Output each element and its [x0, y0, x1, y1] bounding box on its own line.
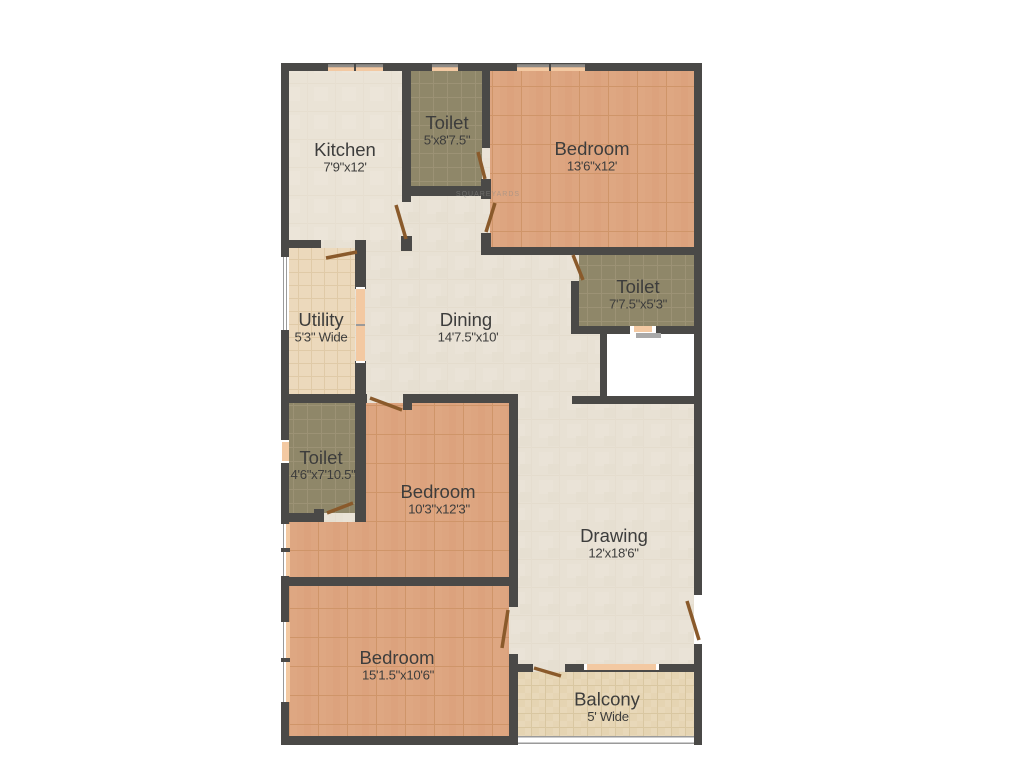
svg-text:10'3"x12'3": 10'3"x12'3"	[408, 502, 470, 517]
svg-text:SQUAREYARDS: SQUAREYARDS	[456, 191, 520, 198]
svg-text:13'6"x12': 13'6"x12'	[567, 159, 617, 174]
svg-text:Toilet: Toilet	[299, 447, 342, 468]
svg-text:5'3" Wide: 5'3" Wide	[295, 330, 348, 345]
svg-text:Drawing: Drawing	[580, 525, 648, 546]
svg-text:14'7.5"x10': 14'7.5"x10'	[438, 330, 499, 345]
svg-text:Toilet: Toilet	[425, 112, 468, 133]
svg-text:Dining: Dining	[440, 309, 492, 330]
svg-text:Bedroom: Bedroom	[554, 138, 629, 159]
svg-text:Balcony: Balcony	[574, 689, 641, 710]
svg-text:7'9"x12': 7'9"x12'	[323, 160, 366, 175]
svg-text:Kitchen: Kitchen	[314, 139, 376, 160]
svg-text:5' Wide: 5' Wide	[587, 709, 628, 724]
svg-text:Utility: Utility	[298, 309, 344, 330]
svg-text:Bedroom: Bedroom	[359, 647, 434, 668]
svg-text:15'1.5"x10'6": 15'1.5"x10'6"	[362, 668, 435, 683]
svg-text:12'x18'6": 12'x18'6"	[588, 546, 639, 561]
svg-text:4'6"x7'10.5": 4'6"x7'10.5"	[290, 467, 356, 482]
svg-text:5'x8'7.5": 5'x8'7.5"	[424, 133, 471, 148]
svg-text:7'7.5"x5'3": 7'7.5"x5'3"	[609, 297, 668, 312]
svg-text:Toilet: Toilet	[616, 276, 659, 297]
svg-text:Bedroom: Bedroom	[400, 481, 475, 502]
